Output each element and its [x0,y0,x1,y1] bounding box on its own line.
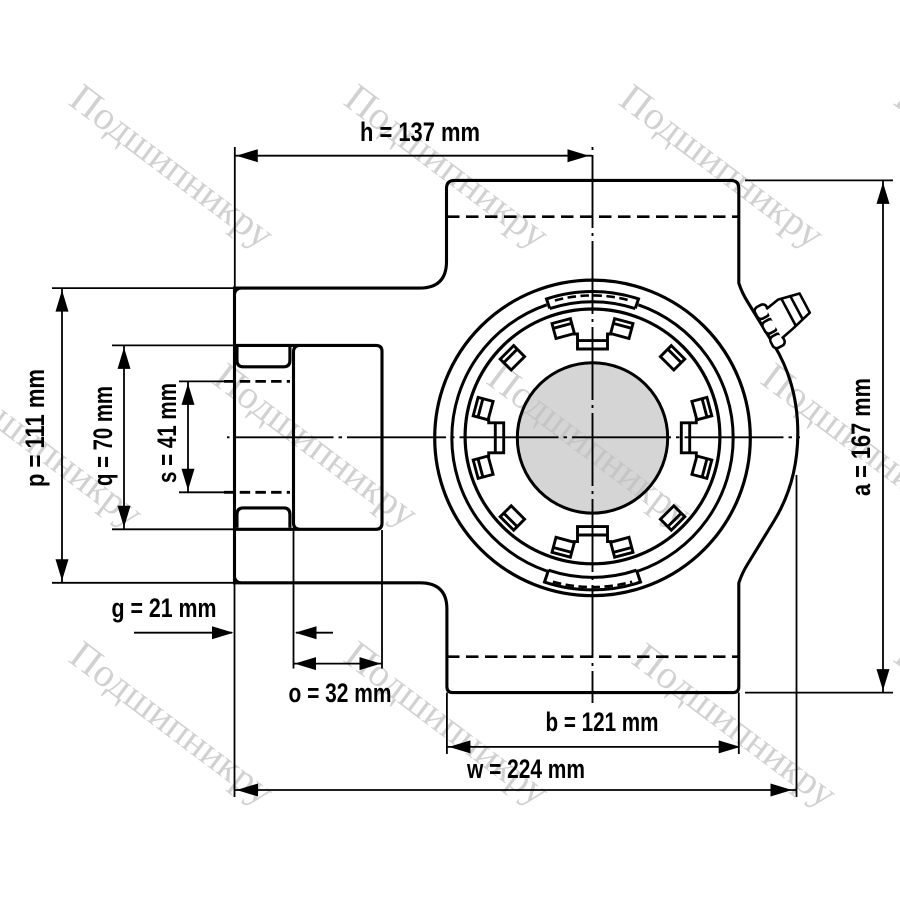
svg-text:a = 167 mm: a = 167 mm [846,378,876,496]
svg-text:h = 137 mm: h = 137 mm [360,117,480,147]
svg-text:g = 21 mm: g = 21 mm [112,593,217,623]
svg-text:q = 70 mm: q = 70 mm [88,386,118,486]
svg-text:s = 41 mm: s = 41 mm [152,383,182,483]
svg-text:b = 121 mm: b = 121 mm [546,707,659,737]
svg-text:p = 111 mm: p = 111 mm [20,369,50,487]
svg-text:w = 224 mm: w = 224 mm [466,754,585,784]
svg-text:o = 32 mm: o = 32 mm [289,678,392,708]
